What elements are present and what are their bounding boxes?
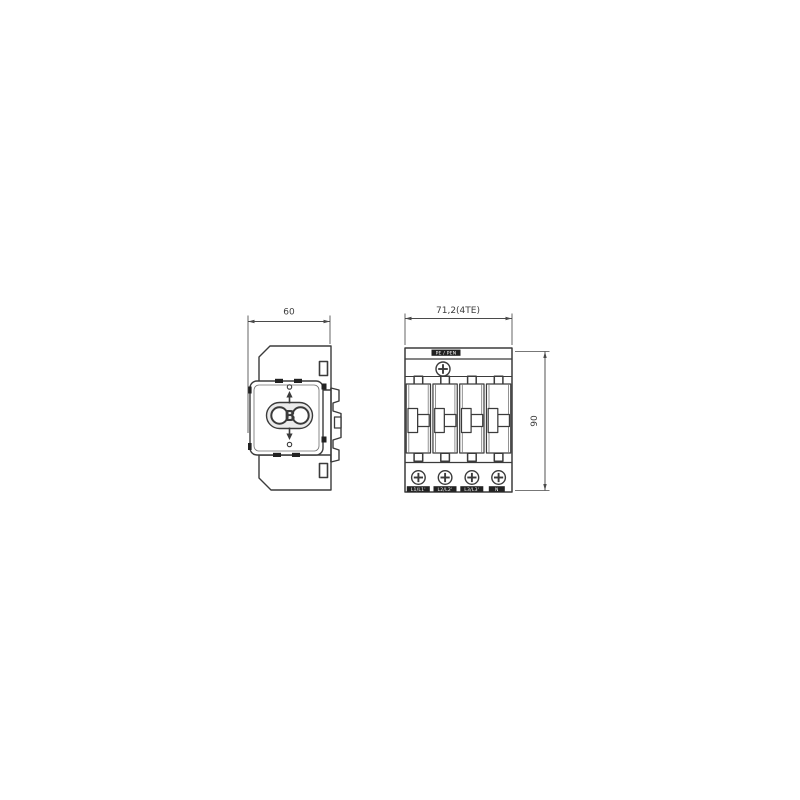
module-tab (441, 453, 450, 461)
dimension-text: 71,2(4TE) (436, 306, 480, 316)
dimension-width-71-2: 71,2(4TE) (405, 306, 512, 345)
top-terminal-label: PE / PEN (436, 351, 457, 357)
dim-arrow (324, 320, 331, 323)
arrow-down-dot (287, 442, 291, 446)
mounting-slot (320, 362, 328, 376)
screw-icon (436, 362, 450, 376)
module-handle-tab (471, 415, 483, 427)
module-handle-tab (498, 415, 510, 427)
clip-mark (275, 379, 283, 383)
technical-drawing: B PE / PEN (0, 0, 800, 800)
module-handle (462, 409, 472, 433)
front-view: PE / PEN (405, 348, 512, 493)
clip-mark (273, 453, 281, 457)
arrow-up-dot (287, 385, 291, 389)
dim-arrow (543, 352, 546, 359)
screw-icon (465, 471, 479, 485)
module-tab (468, 376, 477, 384)
module-tab (494, 453, 503, 461)
module-tab (441, 376, 450, 384)
screw-icon (438, 471, 452, 485)
clip-mark (248, 443, 252, 450)
module-handle (435, 409, 445, 433)
terminal-label: L2/L2' (438, 487, 453, 493)
terminal-label: L3/L3' (464, 487, 479, 493)
screw-icon (412, 471, 426, 485)
drawing-canvas: B PE / PEN (0, 0, 800, 800)
mounting-slot (320, 464, 328, 478)
terminal-label: N (495, 487, 499, 493)
dim-arrow (543, 484, 546, 491)
dim-arrow (506, 317, 513, 320)
terminal-label: L1/L1' (411, 487, 426, 493)
module-tab (414, 453, 423, 461)
clip-mark (294, 379, 302, 383)
logo-letter-b: B (284, 407, 295, 425)
module-tab (468, 453, 477, 461)
module-handle-tab (418, 415, 430, 427)
clip-mark (248, 387, 252, 394)
dim-arrow (405, 317, 412, 320)
dimension-text: 60 (283, 308, 295, 318)
dimension-text: 90 (530, 415, 540, 427)
module-tab (494, 376, 503, 384)
module-handle (408, 409, 418, 433)
side-view: B (248, 346, 341, 490)
mounting-slot (335, 417, 342, 428)
obo-logo: B (267, 403, 313, 429)
dimension-height-90: 90 (515, 352, 550, 491)
module-handle-tab (444, 415, 456, 427)
clip-mark (292, 453, 300, 457)
clip-mark (322, 384, 327, 390)
module-tab (414, 376, 423, 384)
clip-mark (322, 437, 327, 443)
screw-icon (492, 471, 506, 485)
dim-arrow (248, 320, 255, 323)
module-handle (488, 409, 498, 433)
